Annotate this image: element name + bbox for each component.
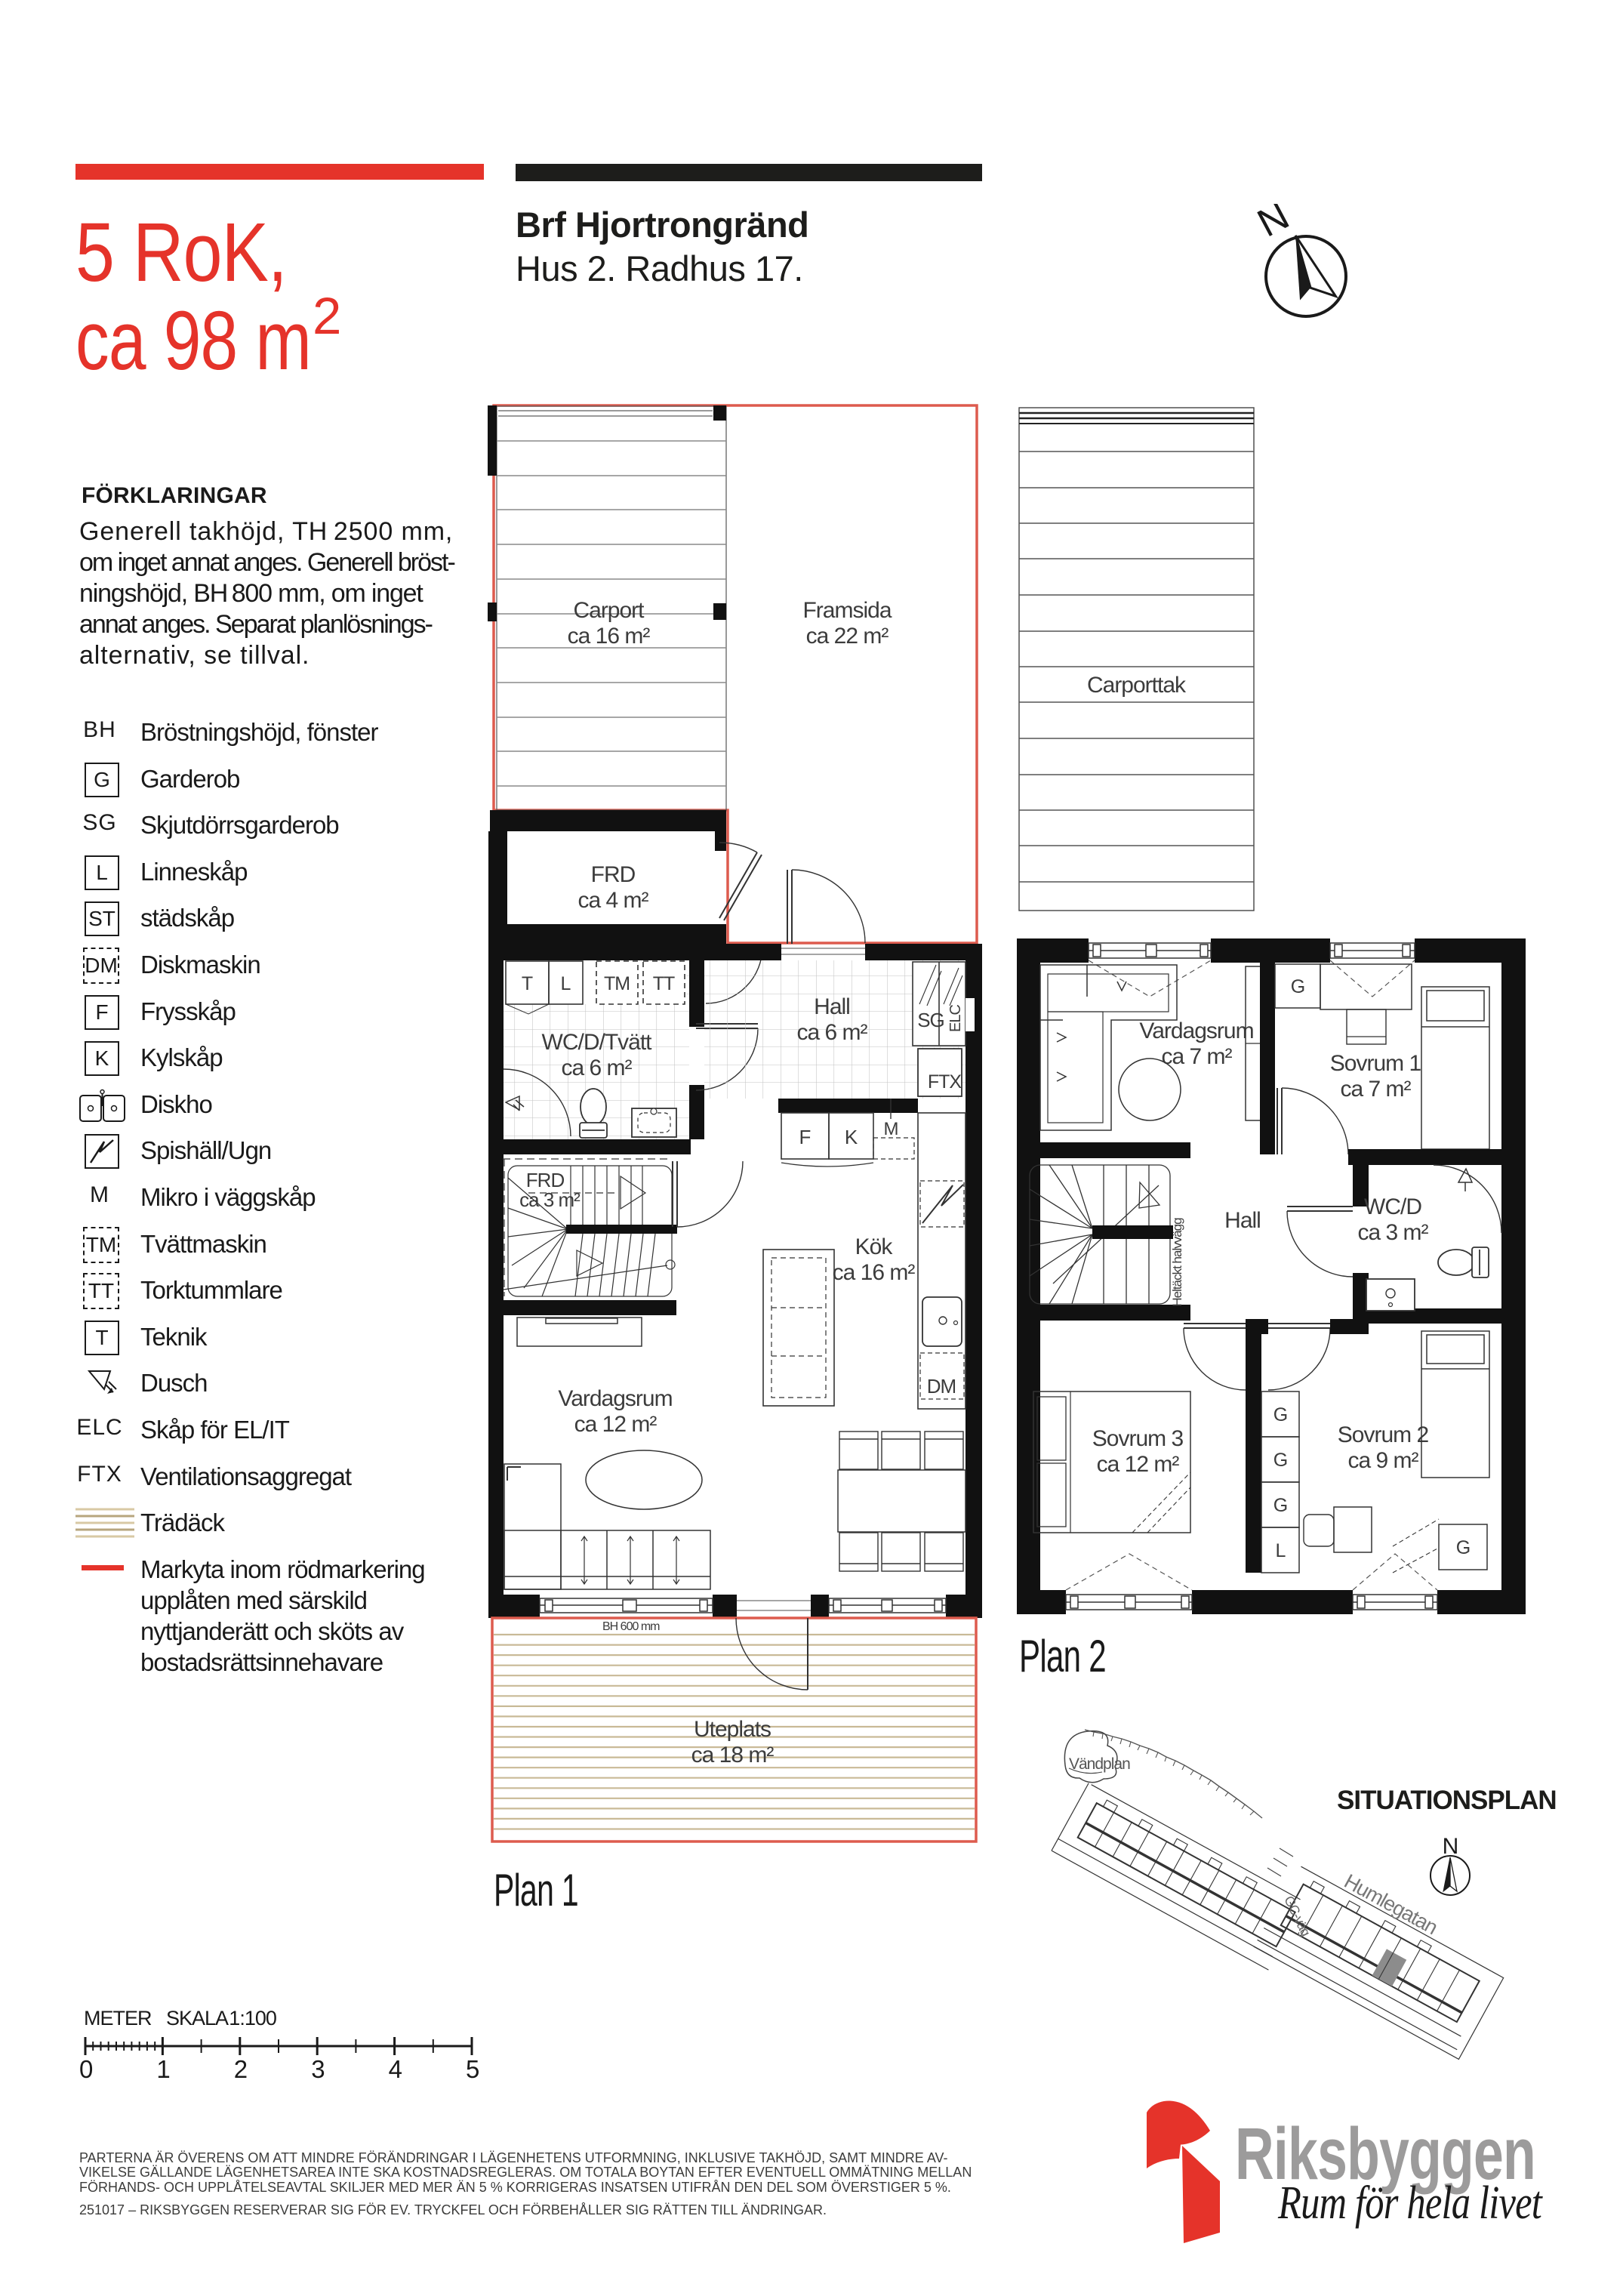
svg-text:SG: SG (917, 1009, 944, 1031)
svg-text:ca 6 m²: ca 6 m² (796, 1020, 867, 1045)
svg-text:Plan 1: Plan 1 (494, 1865, 578, 1915)
svg-text:Plan 2: Plan 2 (1019, 1631, 1106, 1681)
svg-text:Vändplan: Vändplan (1069, 1755, 1130, 1773)
svg-text:ca 9 m²: ca 9 m² (1347, 1448, 1418, 1473)
svg-text:WC/D: WC/D (1364, 1194, 1421, 1219)
svg-text:G: G (1273, 1404, 1287, 1425)
svg-text:Rum för hela livet: Rum för hela livet (1277, 2177, 1543, 2229)
svg-text:ca 16 m²: ca 16 m² (568, 624, 651, 649)
svg-text:METER SKALA 1:100: METER SKALA 1:100 (84, 2007, 276, 2029)
svg-text:ca 6 m²: ca 6 m² (561, 1056, 632, 1080)
svg-text:WC/D/Tvätt: WC/D/Tvätt (542, 1030, 653, 1055)
svg-text:FTX: FTX (928, 1071, 962, 1093)
svg-text:ELC: ELC (947, 1004, 964, 1031)
svg-text:ca 4 m²: ca 4 m² (577, 888, 648, 913)
svg-text:G: G (1291, 976, 1304, 997)
svg-text:G: G (1273, 1495, 1287, 1516)
svg-text:ca 98 m: ca 98 m (75, 294, 311, 385)
svg-text:ca 16 m²: ca 16 m² (833, 1260, 916, 1285)
svg-text:BH 600 mm: BH 600 mm (602, 1620, 660, 1633)
svg-text:1: 1 (156, 2055, 169, 2083)
svg-text:Sovrum 3: Sovrum 3 (1092, 1426, 1184, 1451)
svg-text:G: G (1456, 1537, 1470, 1558)
svg-text:ca 7 m²: ca 7 m² (1340, 1077, 1411, 1102)
svg-text:ca 3 m²: ca 3 m² (1357, 1220, 1428, 1245)
svg-text:L: L (561, 973, 571, 994)
svg-text:3: 3 (311, 2055, 324, 2083)
svg-text:ca 7 m²: ca 7 m² (1161, 1044, 1232, 1069)
svg-text:0: 0 (79, 2055, 93, 2083)
svg-text:Heltäckt halvvägg: Heltäckt halvvägg (1170, 1218, 1184, 1307)
svg-text:2: 2 (234, 2055, 247, 2083)
svg-text:Vardagsrum: Vardagsrum (558, 1386, 672, 1411)
svg-text:Uteplats: Uteplats (694, 1717, 771, 1742)
svg-text:F: F (799, 1126, 811, 1148)
svg-text:FRD: FRD (591, 862, 636, 887)
svg-text:N: N (1443, 1834, 1458, 1859)
svg-text:Sovrum 2: Sovrum 2 (1338, 1422, 1429, 1447)
svg-text:4: 4 (389, 2055, 402, 2083)
svg-text:5: 5 (466, 2055, 479, 2083)
svg-text:2: 2 (313, 287, 340, 345)
svg-text:Hall: Hall (814, 994, 850, 1019)
svg-text:Framsida: Framsida (802, 598, 892, 623)
svg-text:ca 3 m²: ca 3 m² (519, 1188, 581, 1211)
svg-text:Carporttak: Carporttak (1087, 673, 1187, 698)
svg-text:M: M (884, 1119, 898, 1139)
svg-text:ca 22 m²: ca 22 m² (806, 624, 889, 649)
svg-text:ca 12 m²: ca 12 m² (574, 1412, 658, 1437)
svg-text:Hall: Hall (1224, 1208, 1261, 1233)
svg-text:ca 12 m²: ca 12 m² (1097, 1452, 1180, 1477)
svg-text:SITUATIONSPLAN: SITUATIONSPLAN (1337, 1786, 1557, 1815)
svg-text:Vardagsrum: Vardagsrum (1139, 1019, 1253, 1043)
svg-text:5 RoK,: 5 RoK, (75, 206, 287, 299)
svg-text:Sovrum 1: Sovrum 1 (1330, 1051, 1421, 1076)
svg-text:TT: TT (653, 973, 675, 994)
svg-text:T: T (522, 973, 533, 994)
svg-text:Kök: Kök (855, 1234, 894, 1259)
svg-text:K: K (845, 1126, 858, 1148)
svg-text:G: G (1273, 1450, 1287, 1471)
svg-text:ca 18 m²: ca 18 m² (691, 1743, 775, 1767)
svg-text:L: L (1276, 1540, 1286, 1561)
svg-text:DM: DM (927, 1375, 956, 1398)
svg-text:Carport: Carport (573, 598, 645, 623)
svg-text:TM: TM (604, 973, 630, 994)
